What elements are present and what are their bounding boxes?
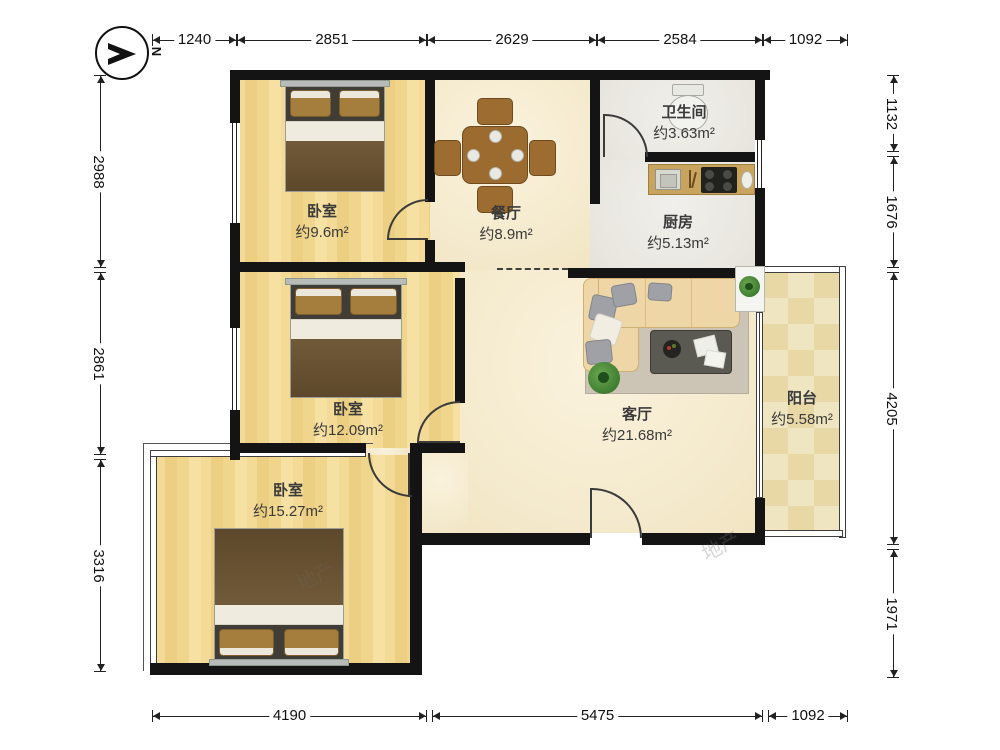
balcony-name: 阳台 — [771, 388, 833, 409]
bed-pillow-zone — [291, 285, 401, 319]
plate-icon — [489, 130, 502, 143]
dim-value: 1092 — [787, 706, 828, 726]
sink-icon — [655, 169, 681, 190]
bed-sheet — [291, 319, 401, 339]
bedroom-2-door-leaf — [417, 441, 460, 443]
dim-top-4: 2584 — [597, 40, 763, 41]
balcony-area: 约5.58m² — [771, 409, 833, 430]
chair-icon — [434, 140, 461, 176]
dim-arrow — [890, 260, 898, 267]
wall-bathroom-kitchen — [645, 152, 765, 162]
bedroom-3-area: 约15.27m² — [253, 501, 323, 522]
bathroom-area: 约3.63m² — [653, 123, 715, 144]
dim-value: 5475 — [577, 706, 618, 726]
dim-arrow — [840, 712, 847, 720]
bed-sheet — [215, 605, 343, 625]
dim-arrow — [890, 76, 898, 83]
bedroom-1-window — [230, 123, 240, 223]
dim-arrow — [755, 712, 762, 720]
dim-arrow — [840, 36, 847, 44]
coffee-table-icon — [650, 330, 732, 374]
kitchen-name: 厨房 — [647, 212, 709, 233]
dim-right-2: 1676 — [893, 156, 894, 268]
plate-icon — [489, 167, 502, 180]
dim-right-3: 4205 — [893, 272, 894, 545]
dim-left-3: 3316 — [100, 459, 101, 672]
wall-living-bottom-left — [422, 533, 590, 545]
dim-value: 1971 — [883, 593, 900, 634]
bed-pillow-zone — [215, 625, 343, 659]
dim-arrow — [769, 712, 776, 720]
bed-headboard — [209, 659, 349, 666]
dim-value: 1676 — [883, 191, 900, 232]
pillow-icon — [284, 629, 339, 656]
dim-arrow — [153, 36, 160, 44]
wall-bedroom1-dining — [425, 80, 435, 202]
stove-icon — [701, 167, 737, 193]
dim-arrow — [97, 664, 105, 671]
dim-bottom-1: 4190 — [152, 716, 427, 717]
dim-arrow — [229, 36, 236, 44]
bedroom-3-door-leaf — [408, 453, 410, 497]
dim-arrow — [890, 144, 898, 151]
dim-arrow — [764, 36, 771, 44]
kitchen-counter — [648, 164, 755, 195]
dim-value: 2584 — [659, 30, 700, 50]
bed-icon-bedroom-1 — [283, 80, 387, 192]
sofa-pillow-icon — [585, 339, 613, 366]
dim-value: 4205 — [883, 388, 900, 429]
compass-arrow-notch — [108, 49, 120, 59]
bed-body — [290, 284, 402, 398]
bedroom-2-window — [230, 328, 240, 410]
chair-icon — [529, 140, 556, 176]
dim-arrow — [890, 550, 898, 557]
dim-arrow — [97, 460, 105, 467]
burner-icon — [723, 182, 732, 191]
compass — [95, 26, 149, 80]
dim-arrow — [97, 260, 105, 267]
kitchen-window — [755, 140, 765, 188]
dim-top-5: 1092 — [763, 40, 848, 41]
bathroom-label: 卫生间 约3.63m² — [653, 102, 715, 144]
dining-name: 餐厅 — [479, 203, 532, 224]
bedroom-1-area: 约9.6m² — [295, 222, 348, 243]
dim-arrow — [890, 273, 898, 280]
dim-value: 2851 — [311, 30, 352, 50]
dim-arrow — [433, 712, 440, 720]
dim-arrow — [589, 36, 596, 44]
open-boundary-dining-living — [497, 268, 568, 270]
bedroom-1-door-leaf — [387, 238, 428, 240]
pillow-icon — [219, 629, 274, 656]
dim-arrow — [97, 273, 105, 280]
kitchen-label: 厨房 约5.13m² — [647, 212, 709, 254]
bedroom-1-label: 卧室 约9.6m² — [295, 201, 348, 243]
wall-bedroom1-bottom — [230, 262, 465, 272]
chair-icon — [477, 98, 513, 125]
living-name: 客厅 — [602, 404, 672, 425]
living-area: 约21.68m² — [602, 425, 672, 446]
bedroom-2-name: 卧室 — [313, 399, 383, 420]
pillow-icon — [339, 90, 380, 117]
bedroom-1-name: 卧室 — [295, 201, 348, 222]
bedroom-3-label: 卧室 约15.27m² — [253, 480, 323, 522]
dim-arrow — [428, 36, 435, 44]
dim-arrow — [419, 712, 426, 720]
dim-arrow — [598, 36, 605, 44]
bowl-fruit — [672, 344, 676, 348]
pillow-icon — [295, 288, 342, 315]
dim-left-1: 2988 — [100, 75, 101, 268]
dim-arrow — [153, 712, 160, 720]
balcony-window-wall-right — [839, 266, 846, 538]
living-label: 客厅 约21.68m² — [602, 404, 672, 446]
bay-window-outline-left — [143, 443, 144, 671]
dim-arrow — [97, 76, 105, 83]
dish-icon — [741, 171, 753, 189]
dim-value: 1240 — [174, 30, 215, 50]
bedroom-3-name: 卧室 — [253, 480, 323, 501]
dim-bottom-2: 5475 — [432, 716, 763, 717]
hall-alcove-floor — [418, 448, 468, 538]
bed-duvet — [291, 339, 401, 397]
bathroom-door-leaf — [603, 114, 605, 157]
bedroom-3-window-wall-left — [150, 450, 157, 670]
balcony-window-wall-top — [763, 266, 845, 273]
wall-kitchen-entry-stub — [590, 162, 600, 204]
balcony-sliding-door — [756, 312, 763, 498]
bowl-icon — [663, 340, 681, 358]
dim-top-2: 2851 — [237, 40, 427, 41]
dim-arrow — [890, 670, 898, 677]
dim-value: 2629 — [491, 30, 532, 50]
dim-arrow — [419, 36, 426, 44]
bed-pillow-zone — [286, 87, 384, 121]
dim-bottom-3: 1092 — [768, 716, 848, 717]
dim-arrow — [755, 36, 762, 44]
bed-icon-bedroom-3 — [212, 528, 346, 666]
dim-arrow — [97, 447, 105, 454]
dim-top-3: 2629 — [427, 40, 597, 41]
wall-bedroom2-living — [455, 278, 465, 403]
compass-n-label: N — [149, 47, 164, 56]
wall-bedroom2-bottom-left — [230, 443, 366, 453]
dim-value: 2861 — [90, 343, 107, 384]
utensil-icon — [691, 172, 697, 188]
plate-icon — [467, 149, 480, 162]
dim-value: 3316 — [90, 545, 107, 586]
paper-icon — [704, 349, 726, 368]
bed-body — [285, 86, 385, 192]
burner-icon — [705, 170, 714, 179]
bed-body — [214, 528, 344, 660]
burner-icon — [705, 182, 714, 191]
plate-icon — [511, 149, 524, 162]
dim-right-1: 1132 — [893, 75, 894, 152]
dim-left-2: 2861 — [100, 272, 101, 455]
floor-plan: N — [0, 0, 1000, 750]
sofa-pillow-icon — [647, 282, 672, 302]
bedroom-2-label: 卧室 约12.09m² — [313, 399, 383, 441]
dim-value: 2988 — [90, 151, 107, 192]
dim-value: 1132 — [883, 93, 900, 133]
dim-value: 1092 — [785, 30, 826, 50]
wall-balcony-stub-bottom — [755, 498, 765, 545]
pillow-icon — [290, 90, 331, 117]
bowl-fruit — [667, 346, 671, 350]
kitchen-area: 约5.13m² — [647, 233, 709, 254]
sink-basin — [660, 174, 677, 188]
dim-arrow — [890, 157, 898, 164]
bed-icon-bedroom-2 — [288, 278, 404, 398]
wall-dining-bathroom — [590, 70, 600, 162]
plant-icon — [739, 276, 760, 297]
plant-icon — [588, 362, 620, 394]
burner-icon — [723, 170, 732, 179]
bed-duvet — [286, 141, 384, 191]
bedroom-2-area: 约12.09m² — [313, 420, 383, 441]
dim-arrow — [890, 537, 898, 544]
pillow-icon — [350, 288, 397, 315]
dim-value: 4190 — [269, 706, 310, 726]
dining-area: 约8.9m² — [479, 224, 532, 245]
balcony-window-wall-bottom — [763, 530, 843, 537]
bathroom-name: 卫生间 — [653, 102, 715, 123]
bed-sheet — [286, 121, 384, 141]
sofa-pillow-icon — [610, 282, 637, 308]
balcony-label: 阳台 约5.58m² — [771, 388, 833, 430]
dining-table-icon — [462, 126, 528, 184]
dim-top-1: 1240 — [152, 40, 237, 41]
entry-door-leaf — [590, 488, 592, 538]
dim-right-4: 1971 — [893, 549, 894, 678]
dining-label: 餐厅 约8.9m² — [479, 203, 532, 245]
wall-top — [230, 70, 770, 80]
dim-arrow — [238, 36, 245, 44]
